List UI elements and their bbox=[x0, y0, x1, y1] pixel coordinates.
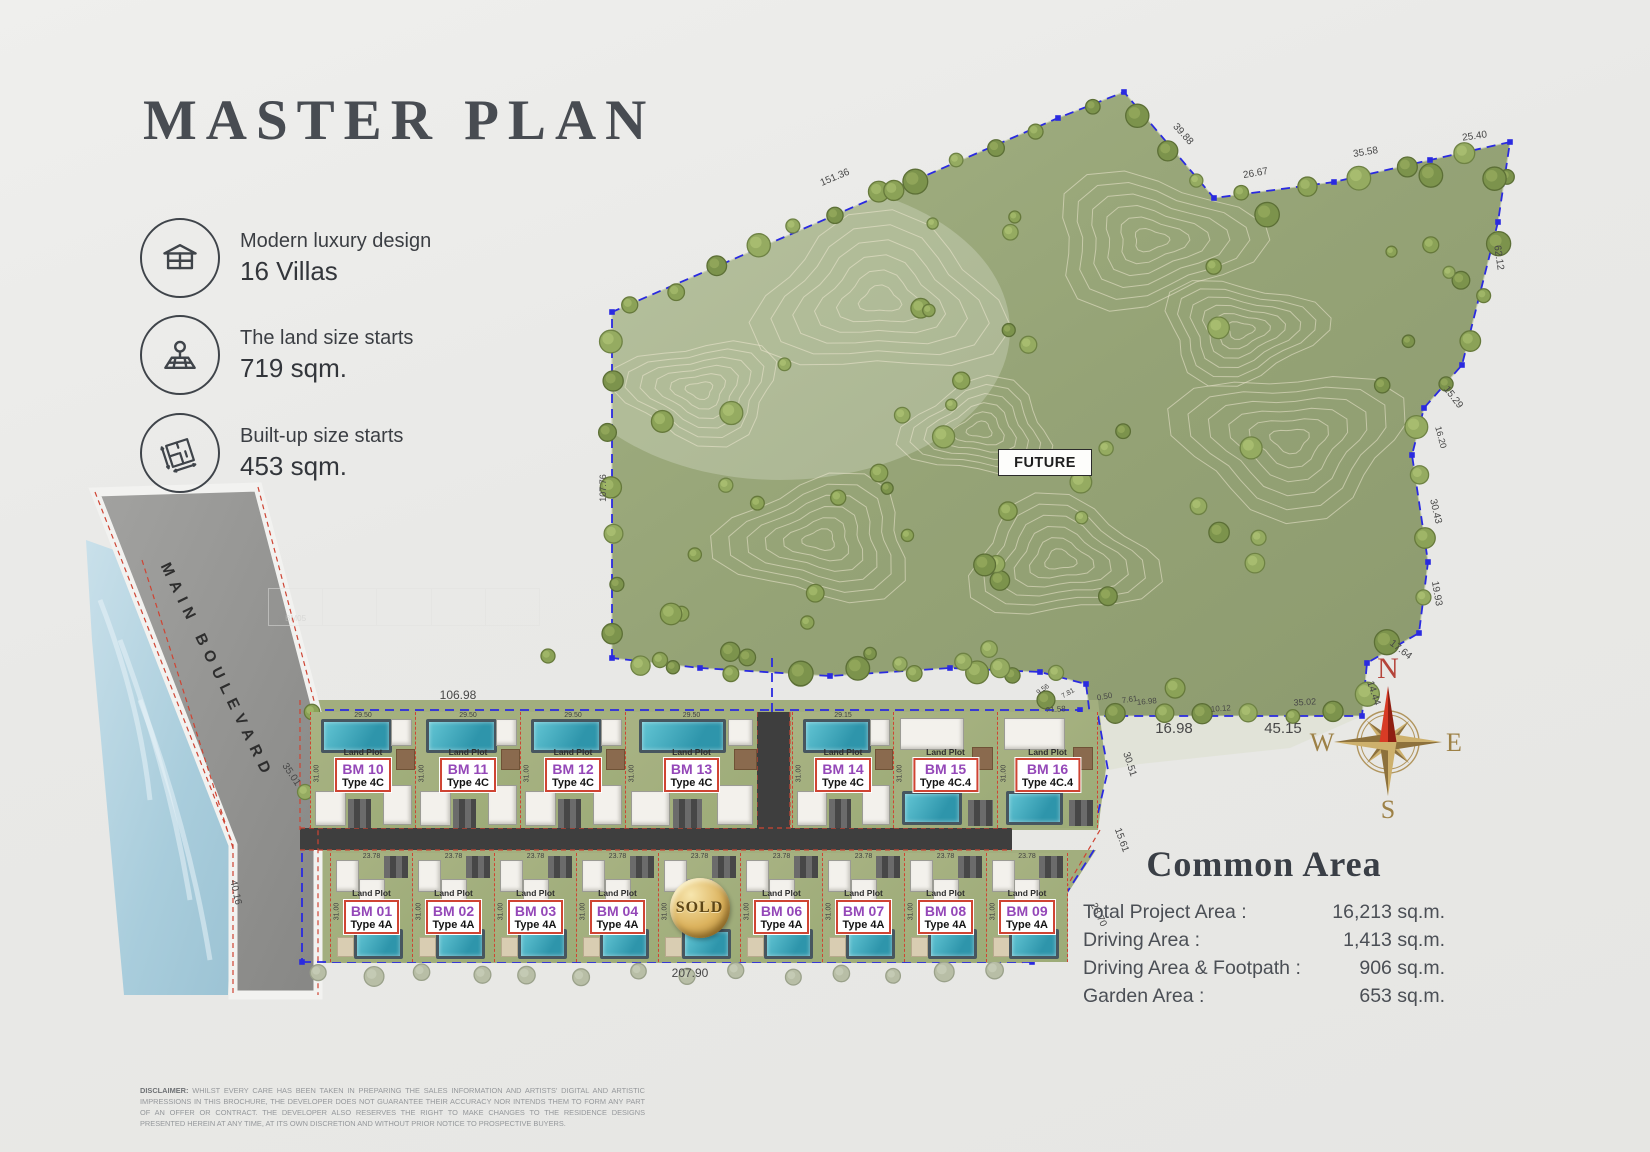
plot-label: BM 09Type 4A bbox=[999, 900, 1055, 934]
land-size-icon bbox=[140, 315, 220, 395]
common-area-row-label: Driving Area & Footpath : bbox=[1083, 957, 1301, 980]
plot-label: BM 01Type 4A bbox=[344, 900, 400, 934]
dlab: 31.00 bbox=[896, 765, 903, 783]
swimming-pool bbox=[902, 791, 962, 825]
plot-type: Type 4A bbox=[843, 919, 885, 931]
feature-villas: Modern luxury design 16 Villas bbox=[140, 218, 431, 298]
dlab: 31.00 bbox=[628, 765, 635, 783]
garage bbox=[968, 800, 993, 826]
feature-line2: 16 Villas bbox=[240, 256, 431, 287]
plot-bm09: 23.7831.00Land PlotBM 09Type 4A bbox=[986, 853, 1068, 962]
driveway bbox=[466, 856, 490, 878]
plot-bm10: 29.5031.00Land PlotBM 10Type 4C bbox=[310, 712, 415, 828]
patio bbox=[337, 937, 354, 956]
plot-label: BM 13Type 4C bbox=[664, 758, 720, 792]
driveway bbox=[548, 856, 572, 878]
plot-type: Type 4A bbox=[925, 919, 967, 931]
plot-label: BM 03Type 4A bbox=[508, 900, 564, 934]
land-plot-caption: Land Plot bbox=[413, 888, 494, 898]
common-area-row: Garden Area :653 sq.m. bbox=[1083, 985, 1445, 1008]
plot-label: BM 15Type 4C.4 bbox=[913, 758, 978, 792]
wlab: 23.78 bbox=[527, 853, 545, 860]
plot-label: BM 10Type 4C bbox=[335, 758, 391, 792]
disclaimer: DISCLAIMER: WHILST EVERY CARE HAS BEEN T… bbox=[140, 1085, 645, 1129]
dlab: 31.00 bbox=[579, 902, 586, 920]
dlab: 31.00 bbox=[795, 765, 802, 783]
garage bbox=[1069, 800, 1093, 826]
plot-bm07: 23.7831.00Land PlotBM 07Type 4A bbox=[822, 853, 904, 962]
land-plot-caption: Land Plot bbox=[741, 888, 822, 898]
disclaimer-label: DISCLAIMER: bbox=[140, 1086, 188, 1095]
wlab: 29.50 bbox=[459, 712, 477, 719]
plot-id: BM 16 bbox=[1022, 761, 1073, 777]
land-plot-caption: Land Plot bbox=[311, 747, 415, 757]
plot-id: BM 01 bbox=[351, 903, 393, 919]
dlab: 31.00 bbox=[1000, 765, 1007, 783]
villa-roof bbox=[420, 791, 451, 825]
villa-roof bbox=[870, 719, 890, 747]
plot-id: BM 03 bbox=[515, 903, 557, 919]
sold-badge: SOLD bbox=[670, 878, 730, 938]
common-area-row-value: 906 sq.m. bbox=[1359, 957, 1445, 980]
dlab: 31.00 bbox=[989, 902, 996, 920]
patio bbox=[829, 937, 846, 956]
villa-roof bbox=[728, 719, 754, 747]
wlab: 29.15 bbox=[834, 712, 852, 719]
garage bbox=[829, 799, 851, 828]
plot-type: Type 4C bbox=[822, 777, 864, 789]
dlab: 31.00 bbox=[743, 902, 750, 920]
plot-type: Type 4C bbox=[671, 777, 713, 789]
common-area-row-value: 1,413 sq.m. bbox=[1343, 929, 1445, 952]
dlab: 31.00 bbox=[907, 902, 914, 920]
plot-bm08: 23.7831.00Land PlotBM 08Type 4A bbox=[904, 853, 986, 962]
plot-sold: 23.7831.00SOLD bbox=[658, 853, 740, 962]
plot-type: Type 4C.4 bbox=[920, 777, 971, 789]
common-area-row-value: 16,213 sq.m. bbox=[1332, 901, 1445, 924]
plot-bm13: 29.5031.00Land PlotBM 13Type 4C bbox=[625, 712, 757, 828]
plot-id: BM 07 bbox=[843, 903, 885, 919]
driveway bbox=[712, 856, 736, 878]
disclaimer-text: WHILST EVERY CARE HAS BEEN TAKEN IN PREP… bbox=[140, 1086, 645, 1128]
dlab: 31.00 bbox=[523, 765, 530, 783]
feature-land-size: The land size starts 719 sqm. bbox=[140, 315, 413, 395]
dlab: 31.00 bbox=[415, 902, 422, 920]
plot-id: BM 10 bbox=[342, 761, 384, 777]
land-plot-caption: Land Plot bbox=[495, 888, 576, 898]
plot-bm11: 29.5031.00Land PlotBM 11Type 4C bbox=[415, 712, 520, 828]
common-area-row: Total Project Area :16,213 sq.m. bbox=[1083, 901, 1445, 924]
wlab: 23.78 bbox=[1018, 853, 1036, 860]
villa-roof bbox=[797, 791, 827, 825]
plot-label: BM 14Type 4C bbox=[815, 758, 871, 792]
wlab: 23.78 bbox=[691, 853, 709, 860]
dlab: 31.00 bbox=[333, 902, 340, 920]
plot-label: BM 06Type 4A bbox=[754, 900, 810, 934]
master-plan-page: NESW 151.3639.8826.6735.5825.4062.1215.2… bbox=[0, 0, 1650, 1152]
patio bbox=[665, 937, 682, 956]
driveway bbox=[630, 856, 654, 878]
built-up-icon bbox=[140, 413, 220, 493]
feature-line1: Modern luxury design bbox=[240, 230, 431, 253]
plot-type: Type 4A bbox=[1006, 919, 1048, 931]
villa-roof bbox=[1004, 718, 1065, 750]
feature-line2: 719 sqm. bbox=[240, 353, 413, 384]
land-plot-caption: Land Plot bbox=[823, 888, 904, 898]
villa-roof bbox=[717, 785, 753, 824]
villa-roof bbox=[601, 719, 622, 747]
patio bbox=[993, 937, 1009, 956]
villa-roof bbox=[525, 791, 556, 825]
plot-bm03: 23.7831.00Land PlotBM 03Type 4A bbox=[494, 853, 576, 962]
plot-bm16: 31.00Land PlotBM 16Type 4C.4 bbox=[997, 712, 1098, 828]
feature-line1: Built-up size starts bbox=[240, 425, 403, 448]
patio bbox=[501, 937, 518, 956]
plot-type: Type 4C bbox=[342, 777, 384, 789]
dlab: 31.00 bbox=[661, 902, 668, 920]
plot-bm02: 23.7831.00Land PlotBM 02Type 4A bbox=[412, 853, 494, 962]
plot-id: BM 02 bbox=[433, 903, 475, 919]
plot-type: Type 4A bbox=[515, 919, 557, 931]
plot-type: Type 4C.4 bbox=[1022, 777, 1073, 789]
villa-roof bbox=[391, 719, 412, 747]
driveway bbox=[958, 856, 982, 878]
plot-id: BM 14 bbox=[822, 761, 864, 777]
wlab: 29.50 bbox=[564, 712, 582, 719]
driveway bbox=[876, 856, 900, 878]
wlab: 23.78 bbox=[937, 853, 955, 860]
patio bbox=[911, 937, 928, 956]
patio bbox=[747, 937, 764, 956]
land-plot-caption: Land Plot bbox=[998, 747, 1097, 757]
common-area-row-value: 653 sq.m. bbox=[1359, 985, 1445, 1008]
wlab: 23.78 bbox=[363, 853, 381, 860]
land-plot-caption: Land Plot bbox=[416, 747, 520, 757]
plot-id: BM 13 bbox=[671, 761, 713, 777]
plot-label: BM 16Type 4C.4 bbox=[1015, 758, 1080, 792]
plot-type: Type 4A bbox=[761, 919, 803, 931]
plot-id: BM 09 bbox=[1006, 903, 1048, 919]
driveway bbox=[384, 856, 408, 878]
common-area-row: Driving Area :1,413 sq.m. bbox=[1083, 929, 1445, 952]
garage bbox=[348, 799, 371, 828]
driveway bbox=[1039, 856, 1063, 878]
plot-id: BM 12 bbox=[552, 761, 594, 777]
page-title: MASTER PLAN bbox=[143, 88, 655, 153]
plot-id: BM 08 bbox=[925, 903, 967, 919]
feature-built-up: Built-up size starts 453 sqm. bbox=[140, 413, 403, 493]
land-plot-caption: Land Plot bbox=[905, 888, 986, 898]
common-area-panel: Common Area Total Project Area :16,213 s… bbox=[1083, 843, 1445, 1013]
patio bbox=[419, 937, 436, 956]
plot-type: Type 4A bbox=[597, 919, 639, 931]
plot-label: BM 11Type 4C bbox=[440, 758, 496, 792]
wlab: 23.78 bbox=[609, 853, 627, 860]
villa-icon bbox=[140, 218, 220, 298]
wlab: 23.78 bbox=[855, 853, 873, 860]
land-plot-caption: Land Plot bbox=[987, 888, 1067, 898]
plot-bm12: 29.5031.00Land PlotBM 12Type 4C bbox=[520, 712, 625, 828]
land-plot-caption: Land Plot bbox=[626, 747, 757, 757]
feature-line2: 453 sqm. bbox=[240, 451, 403, 482]
driveway bbox=[794, 856, 818, 878]
dlab: 31.00 bbox=[313, 765, 320, 783]
villa-roof bbox=[631, 791, 670, 825]
plot-type: Type 4C bbox=[447, 777, 489, 789]
plot-type: Type 4A bbox=[433, 919, 475, 931]
future-area-label: FUTURE bbox=[998, 449, 1092, 476]
sold-label: SOLD bbox=[676, 899, 724, 917]
plot-bm14: 29.1531.00Land PlotBM 14Type 4C bbox=[792, 712, 893, 828]
land-plot-caption: Land Plot bbox=[331, 888, 412, 898]
plot-id: BM 15 bbox=[920, 761, 971, 777]
wlab: 23.78 bbox=[445, 853, 463, 860]
land-plot-caption: Land Plot bbox=[577, 888, 658, 898]
plot-label: BM 12Type 4C bbox=[545, 758, 601, 792]
garage bbox=[673, 799, 702, 828]
wlab: 23.78 bbox=[773, 853, 791, 860]
plot-id: BM 06 bbox=[761, 903, 803, 919]
wlab: 29.50 bbox=[354, 712, 372, 719]
common-area-row-label: Garden Area : bbox=[1083, 985, 1204, 1008]
plot-type: Type 4C bbox=[552, 777, 594, 789]
land-plot-caption: Land Plot bbox=[521, 747, 625, 757]
common-area-row-label: Driving Area : bbox=[1083, 929, 1200, 952]
garage bbox=[558, 799, 581, 828]
feature-line1: The land size starts bbox=[240, 327, 413, 350]
swimming-pool bbox=[1006, 791, 1063, 825]
garage bbox=[453, 799, 476, 828]
plot-label: BM 02Type 4A bbox=[426, 900, 482, 934]
land-plot-caption: Land Plot bbox=[894, 747, 997, 757]
common-area-row: Driving Area & Footpath :906 sq.m. bbox=[1083, 957, 1445, 980]
plot-bm06: 23.7831.00Land PlotBM 06Type 4A bbox=[740, 853, 822, 962]
common-area-title: Common Area bbox=[1083, 843, 1445, 885]
plot-bm15: 31.00Land PlotBM 15Type 4C.4 bbox=[893, 712, 997, 828]
plot-id: BM 04 bbox=[597, 903, 639, 919]
dlab: 31.00 bbox=[418, 765, 425, 783]
plot-label: BM 04Type 4A bbox=[590, 900, 646, 934]
plot-bm01: 23.7831.00Land PlotBM 01Type 4A bbox=[330, 853, 412, 962]
plot-bm04: 23.7831.00Land PlotBM 04Type 4A bbox=[576, 853, 658, 962]
plot-label: BM 08Type 4A bbox=[918, 900, 974, 934]
patio bbox=[583, 937, 600, 956]
villa-roof bbox=[900, 718, 964, 750]
plot-id: BM 11 bbox=[447, 761, 489, 777]
villa-roof bbox=[496, 719, 517, 747]
wlab: 29.50 bbox=[683, 712, 701, 719]
plot-type: Type 4A bbox=[351, 919, 393, 931]
dlab: 31.00 bbox=[497, 902, 504, 920]
plot-label: BM 07Type 4A bbox=[836, 900, 892, 934]
common-area-row-label: Total Project Area : bbox=[1083, 901, 1247, 924]
dlab: 31.00 bbox=[825, 902, 832, 920]
land-plot-caption: Land Plot bbox=[793, 747, 893, 757]
villa-roof bbox=[315, 791, 346, 825]
